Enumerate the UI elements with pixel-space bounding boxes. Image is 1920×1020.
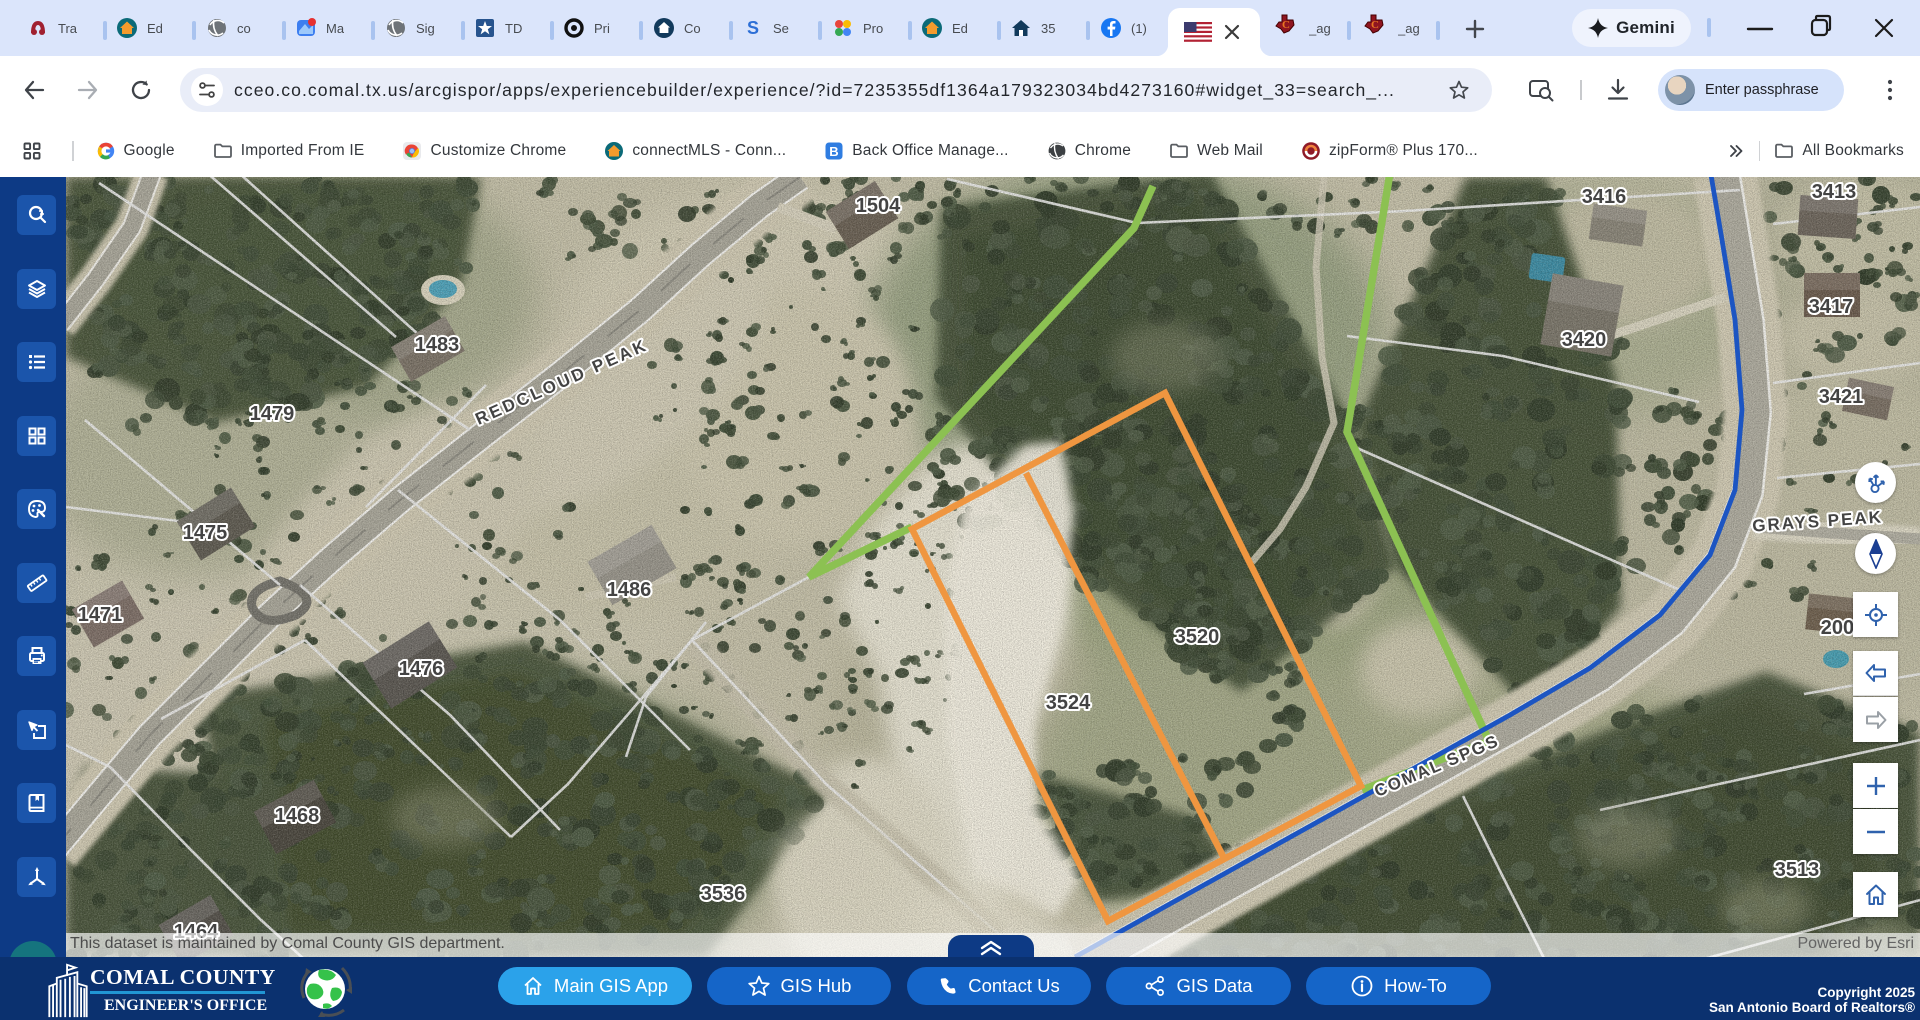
svg-text:3536: 3536 [701, 883, 746, 905]
svg-text:3524: 3524 [1046, 692, 1091, 714]
svg-text:3417: 3417 [1809, 296, 1854, 318]
svg-text:1483: 1483 [415, 334, 460, 356]
svg-text:1475: 1475 [183, 522, 228, 544]
svg-text:1479: 1479 [250, 403, 295, 425]
svg-text:1471: 1471 [78, 604, 123, 626]
svg-text:C: C [1371, 19, 1379, 31]
svg-text:1486: 1486 [607, 579, 652, 601]
svg-text:C: C [1282, 19, 1290, 31]
svg-text:3416: 3416 [1582, 186, 1627, 208]
svg-text:3420: 3420 [1562, 329, 1607, 351]
svg-text:S: S [747, 18, 759, 38]
svg-text:1476: 1476 [399, 658, 444, 680]
svg-text:1504: 1504 [856, 195, 901, 217]
svg-text:B: B [829, 144, 839, 159]
svg-text:3513: 3513 [1775, 859, 1820, 881]
svg-text:1468: 1468 [275, 805, 320, 827]
svg-text:3520: 3520 [1175, 626, 1220, 648]
svg-text:3413: 3413 [1812, 181, 1857, 203]
svg-text:3421: 3421 [1819, 386, 1864, 408]
